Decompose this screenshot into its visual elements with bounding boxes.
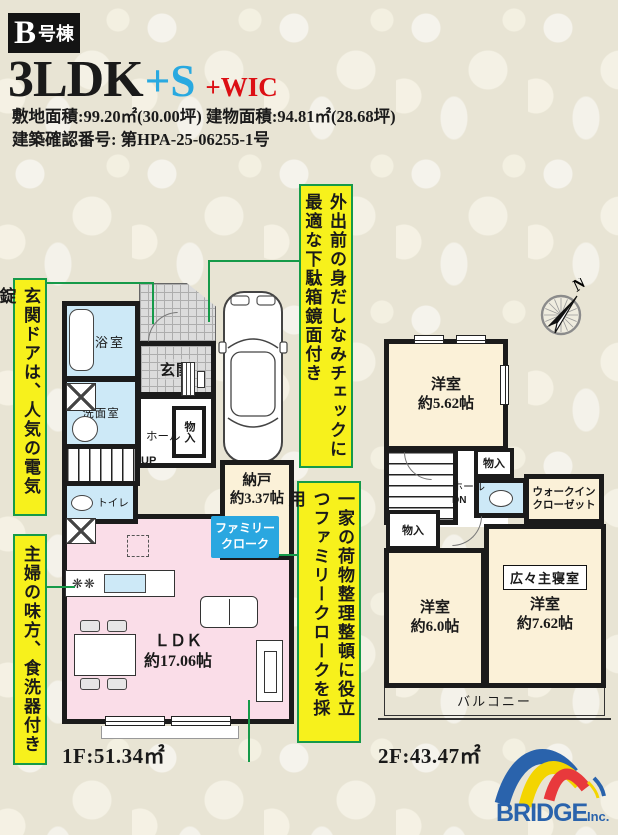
washer-space-icon [66,383,96,411]
kitchen-counter: ❋❋ [65,570,175,597]
hall-2f-label: ホール [452,478,485,494]
plan-title-s: +S [145,55,196,107]
north-label: N [568,278,590,296]
logo-brand-text: BRIDGE [496,799,588,826]
site-area-text: 敷地面積:99.20㎡(30.00坪) 建物面積:94.81㎡(28.68坪) [12,103,396,127]
room-bedroom1: 洋室 約5.62帖 [384,339,508,451]
closet-2f-top: 物入 [474,448,514,478]
connector-line-lock-h [45,282,154,284]
window [105,716,165,726]
room-bedroom3: 広々主寝室 洋室 約7.62帖 [484,524,606,688]
bedroom3-size: 約7.62帖 [517,615,573,634]
plan-title-wic: +WIC [205,72,277,103]
hall-1f-label: ホール [146,428,181,444]
toilet-icon-2f [489,490,513,507]
unit-badge: B 号棟 [8,13,80,53]
bedroom3-name: 洋室 [530,596,560,615]
sink-icon [72,416,98,442]
terrace-step [101,726,239,739]
window [414,335,444,344]
family-cloak-line1: ファミリー [215,521,275,537]
unit-badge-main: B [14,15,36,52]
shoe-box-icon [181,362,195,396]
up-label: UP [141,455,156,467]
room-toilet-1f-label: トイレ [97,495,129,510]
family-cloak-line2: クローク [221,537,269,553]
master-bedroom-badge: 広々主寝室 [503,565,587,590]
closet-1f-label: 物入 [181,421,197,443]
door-arc [452,516,482,546]
stove-burner-icon: ❋❋ [72,576,96,592]
unit-badge-sub: 号棟 [38,20,74,46]
callout-dishwasher: 主婦の味方、食洗器付き [13,534,47,765]
floor2-area-label: 2F:43.47㎡ [378,740,481,770]
stairs-1f [62,444,140,486]
car-icon [214,286,292,468]
toilet-icon-1f [71,495,93,511]
dining-table-icon [74,634,136,676]
callout-shoebox-mirror: 外出前の身だしなみチェックに最適な下駄箱鏡面付き [299,184,353,468]
floor1-area-label: 1F:51.34㎡ [62,740,165,770]
wic-line1: ウォークイン [533,486,596,499]
bedroom1-name: 洋室 [431,376,461,395]
ldk-name: ＬＤＫ [154,632,202,652]
flyer-page: B 号棟 3LDK +S +WIC 敷地面積:99.20㎡(30.00坪) 建物… [0,0,618,835]
kitchen-sink-icon [104,574,146,593]
chair-icon [80,620,100,632]
ldk-label: ＬＤＫ 約17.06帖 [128,632,228,672]
closet-2f-top-label: 物入 [483,455,505,471]
balcony-label: バルコニー [457,691,532,710]
bedroom2-name: 洋室 [420,599,450,618]
chair-icon [80,678,100,690]
sofa-icon [200,596,258,628]
bathtub-icon [69,309,94,371]
ceiling-fixture-icon [127,535,149,557]
callout-family-cloak: 一家の荷物整理整頓に役立つファミリークロークを採用 [297,481,361,743]
chair-icon [107,678,127,690]
down-label: DN [452,495,466,506]
wic-line2: クローゼット [533,499,596,512]
ldk-size: 約17.06帖 [144,652,212,672]
window [500,365,509,405]
room-entrance: 玄関 [136,341,216,397]
closet-2f-left-label: 物入 [402,522,424,538]
plan-title: 3LDK +S +WIC [8,50,278,109]
window [171,716,231,726]
connector-line-ldk [248,700,250,762]
balcony-line [378,718,611,720]
connector-line-lock-v [152,282,154,324]
connector-line-cloak [279,554,297,556]
building-confirmation-text: 建築確認番号: 第HPA-25-06255-1号 [12,126,270,150]
pipe-space-icon [66,518,96,544]
tv-board-icon [256,640,283,702]
room-nando-size: 約3.37帖 [230,490,284,508]
compass-icon: N [540,278,594,338]
room-nando-name: 納戸 [243,472,272,490]
room-wic: ウォークイン クローゼット [524,474,604,524]
balcony: バルコニー [384,686,605,716]
bedroom2-size: 約6.0帖 [411,618,460,637]
logo-suffix-text: Inc. [587,809,609,824]
bridge-logo: BRIDGE Inc. [492,738,616,826]
chair-icon [107,620,127,632]
connector-line-mirror-v [208,260,210,322]
room-bedroom2: 洋室 約6.0帖 [384,548,486,688]
family-cloak-chip: ファミリー クローク [211,516,279,558]
shoe-box-mirror-icon [197,371,205,388]
room-bath-label: 浴室 [95,332,125,351]
connector-line-mirror-h [208,260,299,262]
callout-entrance-lock: 玄関ドアは、人気の電気錠 [13,278,47,516]
connector-line-dishwasher [47,586,75,588]
bedroom1-size: 約5.62帖 [418,395,474,414]
plan-title-main: 3LDK [8,50,143,109]
closet-2f-left: 物入 [386,510,440,550]
window [456,335,486,344]
